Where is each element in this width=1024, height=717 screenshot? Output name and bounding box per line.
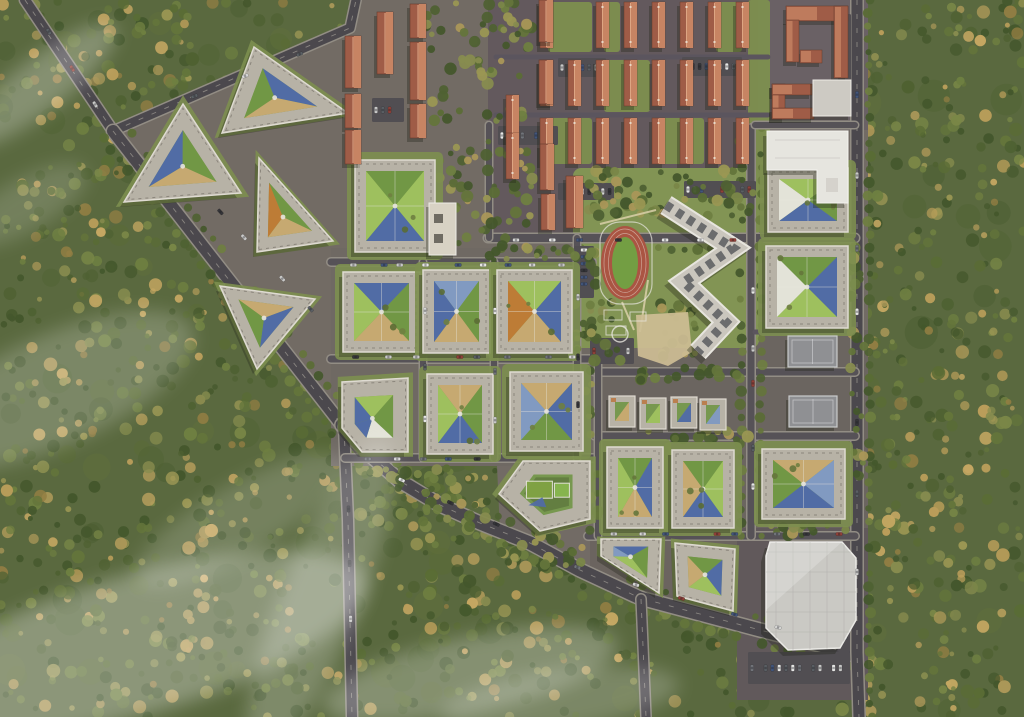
fog-layer (0, 0, 1024, 717)
masterplan-scene (0, 0, 1024, 717)
aerial-masterplan-rendering (0, 0, 1024, 717)
